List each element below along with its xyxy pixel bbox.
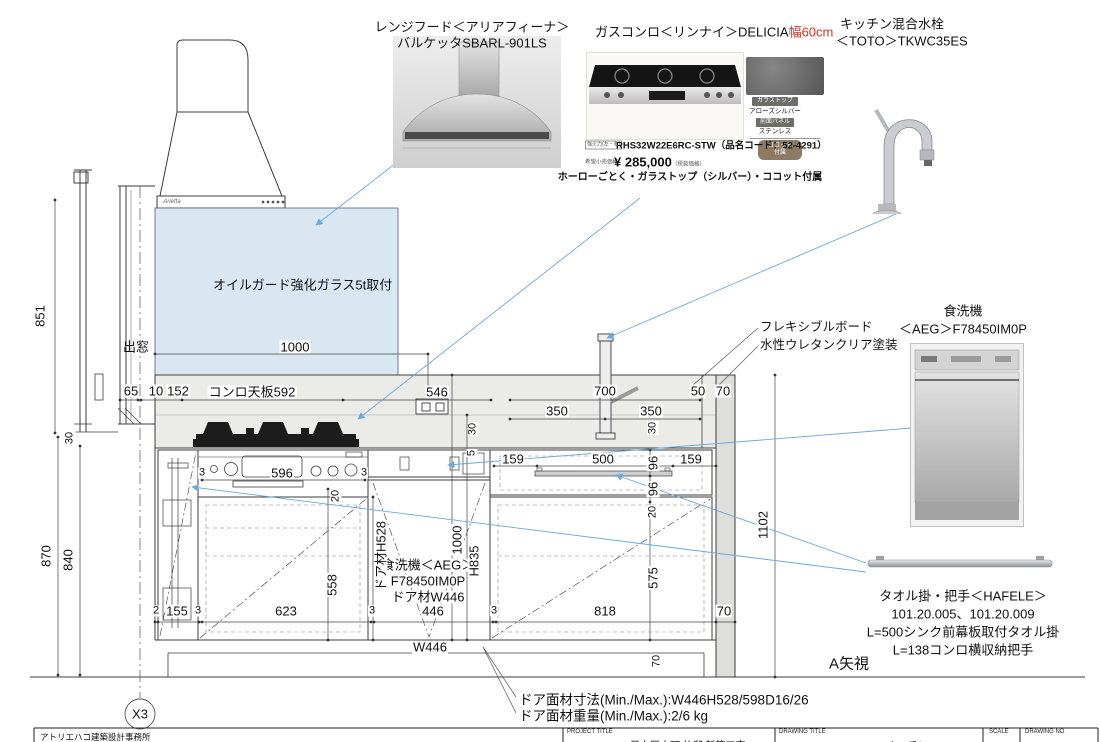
- grid-bubble-label: X3: [132, 708, 148, 721]
- grid-line-x3: [125, 186, 155, 729]
- dim-30-window: 30: [65, 431, 76, 445]
- dim-1000-b: 1000: [451, 525, 464, 556]
- flex-board-note-2: 水性ウレタンクリア塗装: [760, 339, 898, 352]
- oil-guard-note: オイルガード強化ガラス5t取付: [213, 279, 392, 292]
- stove-model: RHS32W22E6RC-STW（品名コード：52-4291）: [616, 141, 827, 151]
- faucet-photo-art: [858, 54, 940, 214]
- dim-350-right: 350: [639, 405, 663, 418]
- dim-w446: W446: [412, 641, 448, 654]
- stove-spec: ホーローごとく・ガラストップ（シルバー）・ココット付属: [558, 173, 823, 183]
- faucet-label-1: キッチン混合水栓: [840, 18, 944, 31]
- dim-623: 623: [274, 605, 298, 618]
- dim-65: 65: [123, 385, 139, 398]
- kitchen-elevation-drawing: ガラストップ アローズシルバー 前面パネル ステンレス ココット 付属 レンジフ…: [0, 0, 1100, 742]
- gas-stove-photo: [586, 52, 744, 140]
- dim-3-a: 3: [198, 468, 206, 479]
- dim-70-top: 70: [715, 385, 731, 398]
- drawing-no-label: DRAWING NO: [1025, 729, 1064, 735]
- dim-851: 851: [34, 304, 47, 328]
- view-label: A矢視: [829, 657, 869, 672]
- range-hood-label-2: バルケッタSBARL-901LS: [397, 37, 547, 50]
- gas-stove-label: ガスコンロ＜リンナイ＞DELICIA幅60cm: [595, 26, 833, 39]
- towel-bar-graphic: [868, 556, 1052, 567]
- towel-bar-note-2: 101.20.005、101.20.009: [891, 608, 1034, 621]
- dim-446: 446: [421, 605, 445, 618]
- towel-bar-note-4: L=138コンロ横収納把手: [893, 644, 1034, 657]
- dim-5: 5: [467, 449, 478, 457]
- dim-70-right: 70: [716, 605, 732, 618]
- range-hood-photo-art: [393, 36, 561, 168]
- scale-label: SCALE: [989, 729, 1009, 735]
- swatch-badge-panel: 前面パネル: [756, 118, 794, 127]
- door-weight-note: ドア面材重量(Min./Max.):2/6 kg: [519, 709, 708, 723]
- bay-window-label: 出窓: [123, 341, 149, 354]
- swatch-value-stainless: ステンレス: [759, 129, 792, 136]
- dim-70-bottom: 70: [652, 654, 663, 668]
- towel-bar-note-3: L=500シンク前幕板取付タオル掛: [867, 626, 1060, 639]
- dim-20-b: 20: [331, 489, 342, 503]
- flex-board-note-1: フレキシブルボード: [760, 321, 873, 334]
- dishwasher-label-2: ＜AEG＞F78450IM0P: [899, 323, 1027, 336]
- dim-3-b: 3: [360, 468, 368, 479]
- dim-3-c: 3: [194, 606, 202, 617]
- dim-h835: H835: [468, 544, 481, 577]
- outlet-box: [416, 399, 448, 414]
- stove-price-note: （税抜価格）: [672, 162, 705, 168]
- dw-note-2: F78450IM0P: [390, 575, 466, 588]
- range-hood-photo: [393, 36, 561, 168]
- faucet-label-2: ＜TOTO＞TKWC35ES: [836, 35, 968, 48]
- project-title-value: 目白区本町 仲邸 新築工事: [630, 737, 746, 742]
- stove-price: ¥ 285,000: [614, 156, 672, 169]
- dishwasher-photo-art: [911, 344, 1023, 526]
- drawing-title-label: DRAWING TITLE: [779, 729, 826, 735]
- project-title-label: PROJECT TITLE: [567, 729, 613, 735]
- dim-2: 2: [152, 606, 160, 617]
- dim-159-left: 159: [501, 453, 525, 466]
- dim-50: 50: [690, 385, 706, 398]
- dim-155: 155: [165, 605, 189, 618]
- dishwasher-photo: [910, 343, 1024, 527]
- cooktop-profile: [193, 422, 359, 447]
- swatch-badge-glasstop: ガラストップ: [752, 97, 798, 106]
- dim-500: 500: [591, 453, 615, 466]
- dim-596: 596: [270, 467, 294, 480]
- dishwasher-label-1: 食洗機: [943, 305, 982, 318]
- dim-1000-top: 1000: [280, 341, 311, 354]
- dim-96-a: 96: [647, 455, 660, 471]
- dw-note-1: 食洗機＜AEG＞: [381, 559, 475, 572]
- door-size-note: ドア面材寸法(Min./Max.):W446H528/598D16/26: [519, 693, 809, 707]
- title-block: アトリエハコ建築設計事務所 PROJECT TITLE 目白区本町 仲邸 新築工…: [0, 728, 1100, 742]
- swatch-divider: [750, 138, 820, 139]
- dim-840: 840: [62, 548, 75, 572]
- stove-width-note: 幅60cm: [789, 25, 834, 40]
- range-hood-outline: [157, 40, 285, 208]
- counter-top-label: コンロ天板592: [208, 386, 297, 399]
- dim-door-h528: ドア材H528: [375, 520, 388, 592]
- dim-818: 818: [593, 605, 617, 618]
- drawing-title-value: キッチン04: [888, 737, 939, 742]
- dim-575: 575: [647, 566, 660, 590]
- hood-brand-mark: Arietta: [163, 199, 180, 205]
- dim-3-e: 3: [490, 606, 498, 617]
- dim-1102: 1102: [757, 510, 770, 540]
- dim-10: 10: [148, 385, 164, 398]
- dim-20-a: 20: [648, 505, 659, 519]
- dim-30-b: 30: [648, 421, 659, 435]
- dim-152: 152: [166, 385, 190, 398]
- dw-note-3: ドア材W446: [391, 591, 466, 604]
- faucet-photo: [858, 54, 940, 214]
- firm-name: アトリエハコ建築設計事務所: [40, 731, 151, 742]
- dim-30-a: 30: [468, 422, 479, 436]
- dim-700: 700: [593, 385, 617, 398]
- dim-870: 870: [40, 544, 53, 568]
- dim-350-left: 350: [545, 405, 569, 418]
- gas-stove-photo-art: [587, 53, 743, 139]
- bay-window-section: [74, 170, 155, 432]
- dim-558: 558: [326, 573, 339, 597]
- range-hood-label-1: レンジフード＜アリアフィーナ＞: [375, 21, 570, 34]
- dim-96-b: 96: [647, 481, 660, 497]
- swatch-value-silver: アローズシルバー: [749, 109, 801, 116]
- towel-bar-note-1: タオル掛・把手＜HAFELE＞: [879, 590, 1047, 603]
- dim-546: 546: [425, 386, 449, 399]
- dim-3-d: 3: [368, 606, 376, 617]
- dim-159-right: 159: [679, 453, 703, 466]
- stove-swatch: [746, 57, 824, 95]
